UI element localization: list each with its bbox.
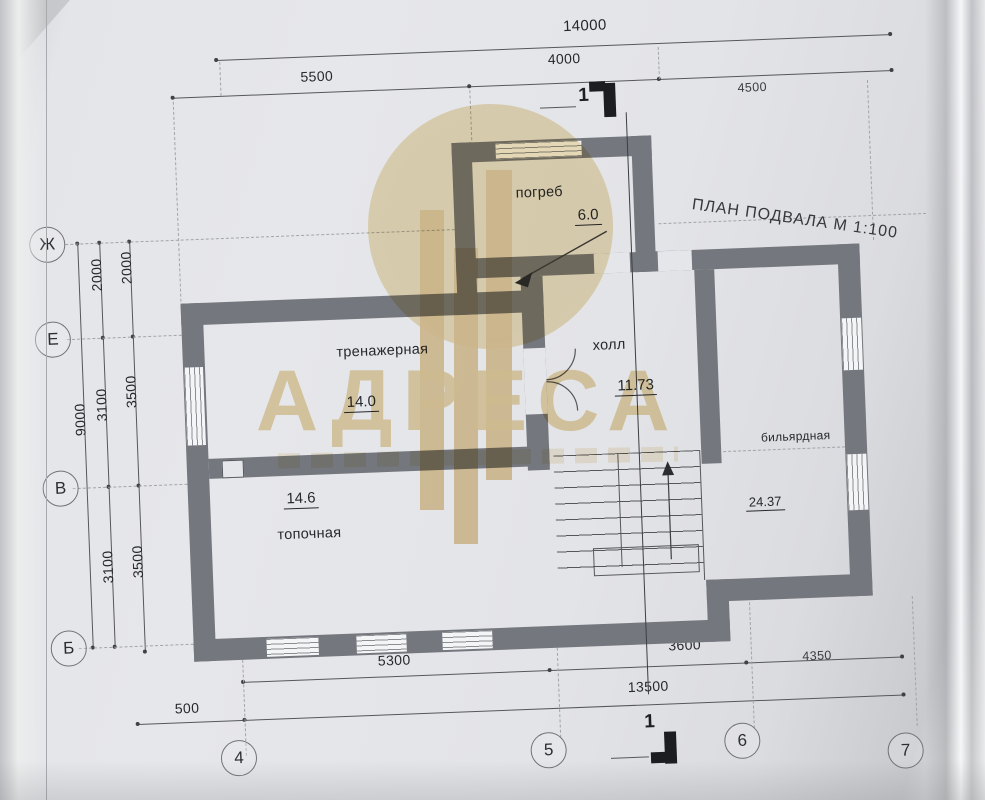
room-boiler-label: топочная (277, 525, 342, 543)
floor-plan-photo: 14000 5500 4000 4500 9000 2000 3100 3100… (0, 0, 985, 800)
paper-shade-bottom (0, 760, 985, 800)
section-flag-top-tab (589, 81, 605, 92)
cellar-entry-arrow (521, 231, 609, 278)
room-billiard-area: 24.37 (746, 493, 785, 511)
stairs-arrow-head (662, 461, 675, 475)
stairs-up-arrow (668, 471, 671, 559)
plan-drawing: 14000 5500 4000 4500 9000 2000 3100 3100… (0, 0, 985, 800)
room-billiard-label: бильярдная (761, 428, 831, 445)
section-marker-top: 1 (578, 85, 589, 107)
room-hall-area: 11.73 (614, 376, 657, 397)
section-line (626, 112, 648, 694)
paper-fold-right (925, 0, 985, 800)
door-swing-arc (545, 349, 576, 380)
room-gym-area: 14.0 (343, 393, 379, 413)
annotation-overlay (0, 0, 985, 800)
room-boiler-area: 14.6 (283, 489, 319, 509)
door-swing-arc (547, 381, 578, 412)
cellar-arrow-head (514, 272, 533, 288)
paper-fold-left (0, 0, 47, 800)
room-pogreb-area: 6.0 (574, 206, 602, 226)
room-pogreb-label: погреб (515, 184, 563, 202)
room-hall-label: холл (592, 337, 626, 354)
section-marker-bottom: 1 (644, 711, 655, 733)
